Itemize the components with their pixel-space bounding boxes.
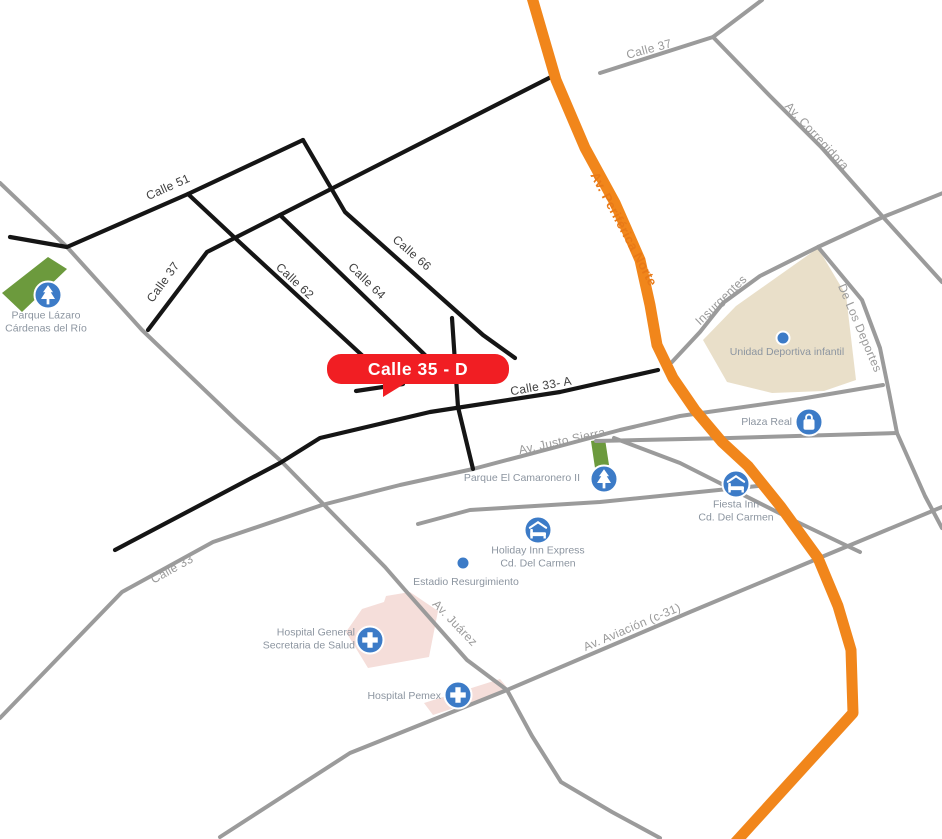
poi-label-line: Cd. Del Carmen — [698, 511, 773, 524]
dot-marker[interactable] — [456, 556, 471, 571]
road-calle-35d-vertical — [452, 318, 473, 469]
tree-icon[interactable] — [589, 464, 619, 494]
poi-label-holiday-inn: Holiday Inn Express Cd. Del Carmen — [491, 545, 584, 570]
poi-label-estadio: Estadio Resurgimiento — [413, 576, 519, 589]
poi-label-plaza-real: Plaza Real — [741, 416, 792, 429]
poi-label-parque-lazaro: Parque Lázaro Cárdenas del Río — [5, 310, 87, 335]
hospital-cross-icon[interactable] — [355, 625, 385, 655]
poi-label-line: Fiesta Inn — [698, 499, 773, 512]
poi-label-line: Cd. Del Carmen — [491, 557, 584, 570]
highlighted-street-callout[interactable]: Calle 35 - D — [327, 354, 509, 384]
poi-label-fiesta-inn: Fiesta Inn Cd. Del Carmen — [698, 499, 773, 524]
poi-label-line: Parque Lázaro — [5, 310, 87, 323]
poi-label-hospital-general: Hospital General Secretaria de Salud — [263, 627, 355, 652]
sports-area-unidad-deportiva — [703, 248, 856, 393]
road-calle-37-diagonal — [148, 76, 553, 330]
road-fiesta-corridor — [596, 433, 897, 441]
poi-label-line: Cárdenas del Río — [5, 322, 87, 335]
road-av-juarez — [0, 183, 660, 838]
poi-label-line: Secretaria de Salud — [263, 639, 355, 652]
map-viewport[interactable]: Calle 51 Calle 37 Calle 62 Calle 64 Call… — [0, 0, 942, 839]
poi-label-hospital-pemex: Hospital Pemex — [367, 690, 441, 703]
road-calle-33-justo-sierra — [0, 385, 883, 718]
hospital-cross-icon[interactable] — [443, 680, 473, 710]
tree-icon[interactable] — [33, 280, 63, 310]
lodging-icon[interactable] — [721, 469, 751, 499]
lodging-icon[interactable] — [523, 515, 553, 545]
poi-label-line: Holiday Inn Express — [491, 545, 584, 558]
poi-label-parque-camaronero: Parque El Camaronero II — [464, 472, 580, 485]
road-calle-33a — [115, 370, 658, 550]
poi-label-unidad-deportiva: Unidad Deportiva infantil — [730, 346, 844, 359]
dot-marker[interactable] — [776, 331, 791, 346]
road-av-corregidora — [713, 37, 942, 282]
shopping-bag-icon[interactable] — [794, 407, 824, 437]
poi-label-line: Hospital General — [263, 627, 355, 640]
